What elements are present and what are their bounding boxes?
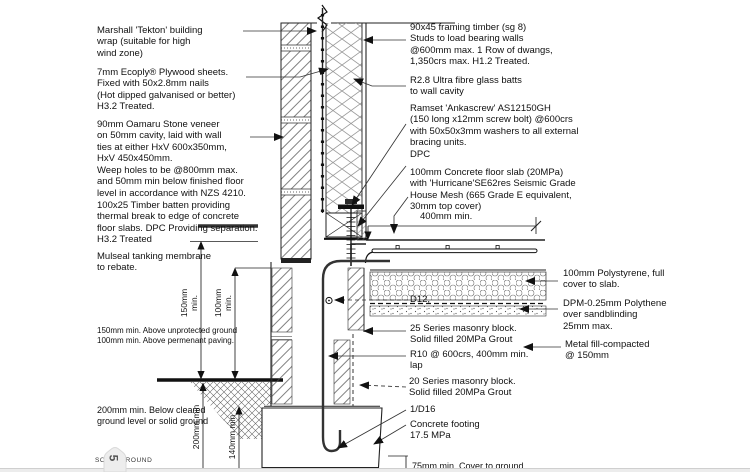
note-d12-bar: D12, [410,294,450,305]
dim-label-400mm: 400mm min. [420,211,500,222]
sandblinding-layer [370,306,546,316]
stone-veneer-section [281,23,311,263]
dim-label-150mm: 150mm min. [180,280,199,326]
note-below-ground: 200mm min. Below cleared ground level or… [97,405,247,427]
note-r10-bar: R10 @ 600crs, 400mm min. lap [410,349,580,372]
rebar-d12-section [326,297,332,303]
pin-badge[interactable]: 5 [102,446,128,472]
note-d16-bar: 1/D16 [410,404,470,415]
note-stone-veneer: 90mm Oamaru Stone veneer on 50mm cavity,… [97,119,272,199]
polystyrene-layer [370,272,546,300]
note-ground-clearance: 150mm min. Above unprotected ground 100m… [97,326,287,347]
note-floor-slab: 100mm Concrete floor slab (20MPa) with '… [410,167,620,213]
note-concrete-footing: Concrete footing 17.5 MPa [410,419,520,442]
note-dpm: DPM-0.25mm Polythene over sandblinding 2… [563,298,713,332]
note-anchor-screw: Ramset 'Ankascrew' AS12150GH (150 long x… [410,103,630,149]
pin-number: 5 [106,455,120,462]
note-building-wrap: Marshall 'Tekton' building wrap (suitabl… [97,25,262,59]
dim-label-100mm: 100mm min. [214,280,233,326]
note-25-series-block: 25 Series masonry block. Solid filled 20… [410,323,570,346]
wall-section-detail-page: Marshall 'Tekton' building wrap (suitabl… [0,0,750,472]
dim-label-200mm: 200mm min [192,402,202,452]
note-tanking-membrane: Mulseal tanking membrane to rebate. [97,251,257,274]
note-20-series-block: 20 Series masonry block. Solid filled 20… [409,376,569,399]
note-metal-fill: Metal fill-compacted @ 150mm [565,339,705,362]
dim-label-140mm: 140mm min [228,412,238,462]
note-insulation: R2.8 Ultra fibre glass batts to wall cav… [410,75,590,98]
note-framing: 90x45 framing timber (sg 8) Studs to loa… [410,22,610,68]
note-plywood: 7mm Ecoply® Plywood sheets. Fixed with 5… [97,67,267,113]
note-dpc: DPC [410,149,470,160]
note-polystyrene: 100mm Polystyrene, full cover to slab. [563,268,713,291]
note-timber-batten: 100x25 Timber batten providing thermal b… [97,200,282,246]
